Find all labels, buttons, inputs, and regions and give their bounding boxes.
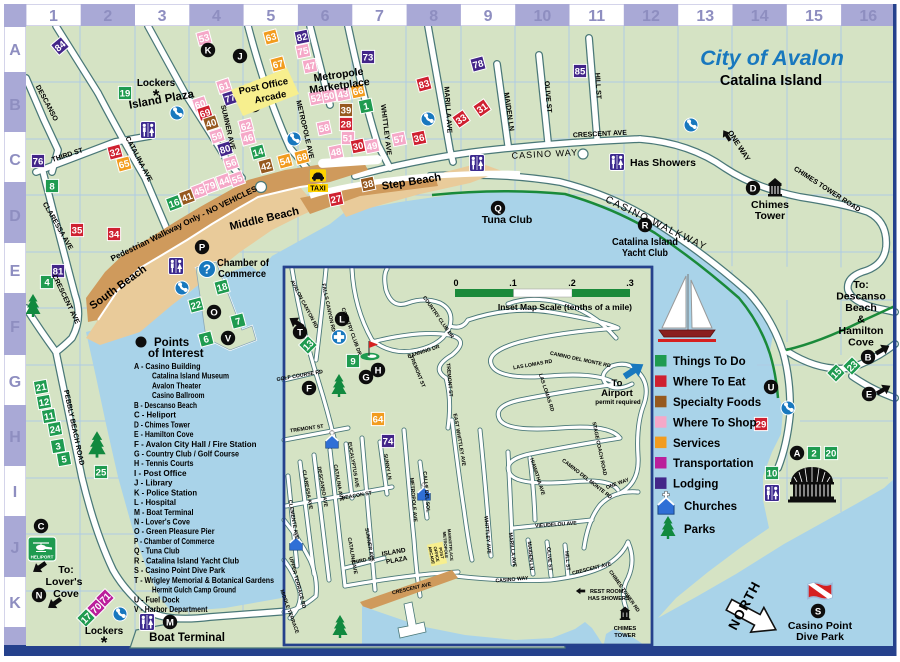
svg-text:.2: .2 xyxy=(568,278,576,288)
svg-text:2: 2 xyxy=(811,449,816,460)
svg-text:Beach: Beach xyxy=(845,302,877,314)
svg-text:12: 12 xyxy=(38,397,50,410)
svg-text:3: 3 xyxy=(158,8,167,25)
svg-text:82: 82 xyxy=(296,31,309,44)
svg-text:10: 10 xyxy=(767,469,778,480)
svg-text:Churches: Churches xyxy=(684,501,737,513)
svg-text:S - Casino Point Dive Park: S - Casino Point Dive Park xyxy=(134,565,225,575)
svg-text:Yacht Club: Yacht Club xyxy=(622,247,668,259)
svg-text:M: M xyxy=(166,618,174,629)
svg-text:Parks: Parks xyxy=(684,524,715,536)
svg-text:35: 35 xyxy=(72,226,83,237)
svg-text:of Interest: of Interest xyxy=(148,348,204,360)
svg-text:C: C xyxy=(38,522,45,533)
svg-text:Lover's: Lover's xyxy=(46,576,83,588)
svg-text:85: 85 xyxy=(575,67,586,78)
svg-text:Catalina Island: Catalina Island xyxy=(720,73,822,89)
svg-text:Cove: Cove xyxy=(53,588,79,600)
svg-text:30: 30 xyxy=(352,140,365,153)
svg-text:Catalina Island Museum: Catalina Island Museum xyxy=(152,371,229,381)
svg-text:10: 10 xyxy=(534,8,552,25)
svg-text:K: K xyxy=(9,595,21,612)
svg-text:57: 57 xyxy=(393,133,406,146)
svg-text:&: & xyxy=(857,314,865,326)
svg-text:TOWER: TOWER xyxy=(614,633,636,639)
svg-text:F: F xyxy=(10,319,20,336)
svg-text:*: * xyxy=(101,633,108,652)
svg-text:V - Harbor Department: V - Harbor Department xyxy=(134,604,208,614)
svg-text:A - Casino Building: A - Casino Building xyxy=(134,361,201,371)
svg-text:8: 8 xyxy=(429,8,438,25)
svg-text:73: 73 xyxy=(363,53,374,64)
svg-text:.3: .3 xyxy=(626,278,634,288)
svg-text:Where To Eat: Where To Eat xyxy=(673,377,746,389)
svg-text:City of Avalon: City of Avalon xyxy=(700,46,844,70)
svg-text:25: 25 xyxy=(96,468,107,479)
svg-text:Lodging: Lodging xyxy=(673,479,718,491)
svg-text:H: H xyxy=(9,429,21,446)
svg-text:Services: Services xyxy=(673,438,720,450)
svg-text:Tower: Tower xyxy=(755,210,785,222)
svg-text:Q - Tuna Club: Q - Tuna Club xyxy=(134,546,180,556)
svg-text:Tuna Club: Tuna Club xyxy=(482,214,533,226)
svg-text:K: K xyxy=(205,46,212,57)
svg-text:G: G xyxy=(9,374,21,391)
svg-text:2: 2 xyxy=(103,8,112,25)
svg-text:64: 64 xyxy=(373,415,384,426)
svg-text:Where To Shop: Where To Shop xyxy=(673,417,756,429)
svg-text:H: H xyxy=(375,366,382,377)
svg-text:Transportation: Transportation xyxy=(673,458,754,470)
svg-text:G - Country Club / Golf Course: G - Country Club / Golf Course xyxy=(134,448,239,458)
svg-text:Has Showers: Has Showers xyxy=(630,157,696,169)
svg-text:J: J xyxy=(237,52,242,63)
svg-text:Specialty Foods: Specialty Foods xyxy=(673,397,761,409)
svg-text:T: T xyxy=(297,328,303,339)
svg-text:Dive Park: Dive Park xyxy=(796,631,844,643)
svg-text:I: I xyxy=(13,484,17,501)
svg-text:E: E xyxy=(10,263,21,280)
svg-text:A: A xyxy=(794,449,801,460)
svg-text:I - Post Office: I - Post Office xyxy=(134,468,187,478)
svg-text:B: B xyxy=(865,353,872,364)
svg-text:J - Library: J - Library xyxy=(134,478,173,488)
svg-text:Hermit Gulch Camp Ground: Hermit Gulch Camp Ground xyxy=(152,585,236,595)
svg-text:REST ROOM: REST ROOM xyxy=(590,589,624,595)
svg-text:34: 34 xyxy=(109,230,120,241)
svg-text:N - Lover's Cove: N - Lover's Cove xyxy=(134,517,190,527)
svg-text:TAXI: TAXI xyxy=(310,186,325,193)
svg-text:Hamilton: Hamilton xyxy=(839,325,884,337)
svg-text:D - Chimes Tower: D - Chimes Tower xyxy=(134,419,191,429)
svg-text:Descanso: Descanso xyxy=(836,291,886,303)
svg-text:15: 15 xyxy=(805,8,823,25)
svg-text:To:: To: xyxy=(58,564,74,576)
svg-text:L - Hospital: L - Hospital xyxy=(134,497,176,507)
svg-text:E: E xyxy=(866,390,872,401)
svg-text:1: 1 xyxy=(49,8,58,25)
svg-text:H - Tennis Courts: H - Tennis Courts xyxy=(134,458,194,468)
svg-text:7: 7 xyxy=(375,8,384,25)
svg-text:U: U xyxy=(768,383,775,394)
svg-text:8: 8 xyxy=(49,182,55,193)
svg-text:Avalon Theater: Avalon Theater xyxy=(152,380,202,390)
svg-text:74: 74 xyxy=(383,437,394,448)
svg-text:12: 12 xyxy=(642,8,660,25)
svg-text:4: 4 xyxy=(212,8,221,25)
svg-text:F: F xyxy=(306,384,312,395)
svg-text:J: J xyxy=(11,540,20,557)
svg-text:Commerce: Commerce xyxy=(218,268,266,280)
svg-text:29: 29 xyxy=(756,420,767,431)
svg-text:11: 11 xyxy=(588,8,605,25)
svg-text:N: N xyxy=(36,591,43,602)
svg-text:O: O xyxy=(210,308,217,319)
svg-text:C: C xyxy=(9,152,21,169)
svg-text:0: 0 xyxy=(453,278,458,288)
svg-text:5: 5 xyxy=(266,8,275,25)
svg-text:P: P xyxy=(199,243,206,254)
svg-text:Airport: Airport xyxy=(601,388,634,399)
svg-text:V: V xyxy=(225,334,232,345)
svg-text:28: 28 xyxy=(341,120,352,131)
svg-text:C - Heliport: C - Heliport xyxy=(134,410,176,420)
svg-text:F - Avalon City Hall / Fire St: F - Avalon City Hall / Fire Station xyxy=(134,439,257,449)
svg-text:M - Boat Terminal: M - Boat Terminal xyxy=(134,507,194,517)
svg-text:20: 20 xyxy=(826,449,837,460)
svg-text:O - Green Pleasure Pier: O - Green Pleasure Pier xyxy=(134,526,215,536)
svg-text:76: 76 xyxy=(33,157,44,168)
svg-text:HELIPORT: HELIPORT xyxy=(31,555,54,560)
svg-text:Casino Ballroom: Casino Ballroom xyxy=(152,390,205,400)
svg-text:HAS SHOWERS: HAS SHOWERS xyxy=(588,596,630,602)
svg-text:To:: To: xyxy=(853,279,869,291)
svg-text:4: 4 xyxy=(44,278,50,289)
svg-text:6: 6 xyxy=(321,8,330,25)
svg-text:Things To Do: Things To Do xyxy=(673,356,746,368)
svg-text:B - Descanso Beach: B - Descanso Beach xyxy=(134,400,197,410)
svg-text:permit required: permit required xyxy=(595,399,641,406)
svg-text:U - Fuel Dock: U - Fuel Dock xyxy=(134,594,180,604)
svg-text:Inset Map Scale (tenths of a m: Inset Map Scale (tenths of a mile) xyxy=(498,302,632,312)
svg-text:G: G xyxy=(362,373,369,384)
svg-text:16: 16 xyxy=(859,8,877,25)
svg-text:P - Chamber of Commerce: P - Chamber of Commerce xyxy=(134,536,215,546)
svg-text:?: ? xyxy=(203,262,211,277)
svg-text:A: A xyxy=(9,42,21,59)
svg-text:.1: .1 xyxy=(509,278,517,288)
svg-text:D: D xyxy=(750,184,757,195)
svg-text:E - Hamilton Cove: E - Hamilton Cove xyxy=(134,429,194,439)
svg-text:T - Wrigley Memorial & Botanic: T - Wrigley Memorial & Botanical Gardens xyxy=(134,575,274,585)
svg-text:HILL ST: HILL ST xyxy=(593,73,601,100)
svg-text:14: 14 xyxy=(751,8,769,25)
svg-text:19: 19 xyxy=(120,89,131,100)
svg-text:B: B xyxy=(9,97,21,114)
svg-text:39: 39 xyxy=(341,106,352,117)
svg-text:13: 13 xyxy=(696,8,714,25)
svg-text:Cove: Cove xyxy=(848,337,874,349)
svg-text:9: 9 xyxy=(350,357,355,368)
svg-text:Q: Q xyxy=(494,204,501,215)
svg-text:9: 9 xyxy=(484,8,493,25)
svg-text:Boat Terminal: Boat Terminal xyxy=(149,632,225,644)
svg-text:D: D xyxy=(9,208,21,225)
svg-text:CHIMES: CHIMES xyxy=(614,626,637,632)
svg-text:K - Police Station: K - Police Station xyxy=(134,487,197,497)
svg-text:36: 36 xyxy=(413,132,426,145)
svg-text:S: S xyxy=(815,607,821,618)
svg-text:49: 49 xyxy=(366,140,379,153)
svg-text:27: 27 xyxy=(330,193,343,206)
svg-text:R - Catalina Island Yacht Club: R - Catalina Island Yacht Club xyxy=(134,555,239,565)
